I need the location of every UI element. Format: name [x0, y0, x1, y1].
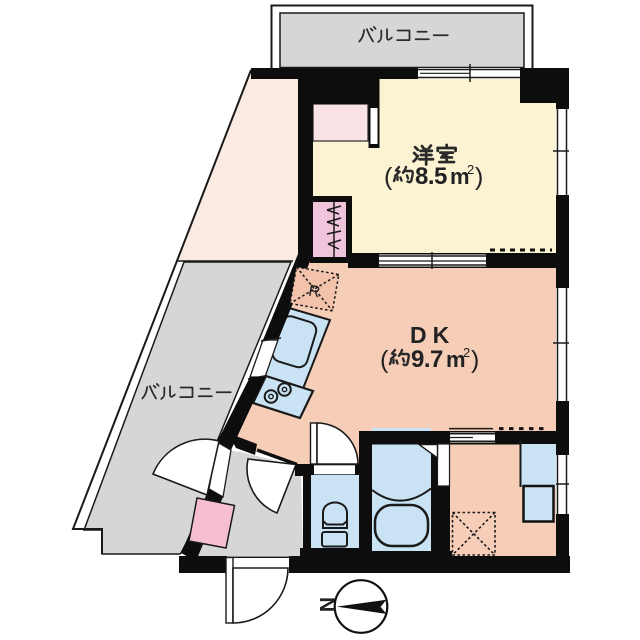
svg-text:N: N	[317, 597, 340, 612]
svg-text:2: 2	[467, 162, 474, 177]
svg-text:(: (	[384, 163, 393, 191]
svg-text:2: 2	[463, 345, 470, 360]
svg-text:DK: DK	[410, 322, 455, 348]
svg-text:8.5: 8.5	[415, 163, 447, 190]
svg-text:(: (	[380, 346, 389, 374]
svg-text:): )	[471, 346, 479, 374]
svg-text:9.7: 9.7	[411, 346, 443, 373]
svg-text:): )	[475, 163, 483, 191]
